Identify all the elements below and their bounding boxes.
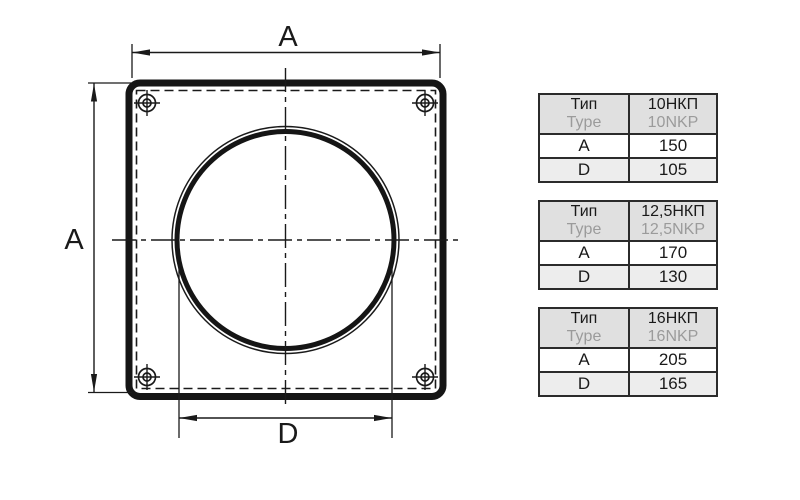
arrowhead-left-icon [179,415,197,421]
flange-drawing: A A D [0,0,530,500]
page: A A D Тип Type [0,0,800,500]
model-name-ru: 16НКП [630,310,716,328]
table-header-row: Тип Type 16НКП 16NKP [539,308,717,348]
model-name-ru: 10НКП [630,96,716,114]
table-row: D 165 [539,372,717,396]
spec-table-16nkp: Тип Type 16НКП 16NKP A 205 D 165 [538,307,718,397]
value-cell: 205 [629,348,717,372]
param-cell: A [539,348,629,372]
model-header-cell: 10НКП 10NKP [629,94,717,134]
spec-table-12-5nkp: Тип Type 12,5НКП 12,5NKP A 170 D 130 [538,200,718,290]
param-cell: D [539,372,629,396]
model-name-en: 12,5NKP [630,221,716,239]
param-cell: D [539,158,629,182]
type-label-ru: Тип [540,203,628,221]
type-label-ru: Тип [540,96,628,114]
arrowhead-up-icon [91,84,97,102]
dimension-height-a: A [64,83,132,393]
value-cell: 165 [629,372,717,396]
type-label-ru: Тип [540,310,628,328]
type-header-cell: Тип Type [539,308,629,348]
type-header-cell: Тип Type [539,201,629,241]
model-header-cell: 16НКП 16NKP [629,308,717,348]
dimension-label-width: A [278,21,298,53]
table-row: D 105 [539,158,717,182]
type-label-en: Type [540,114,628,132]
dimension-label-diameter: D [278,418,299,450]
value-cell: 130 [629,265,717,289]
arrowhead-right-icon [422,49,440,55]
param-cell: A [539,134,629,158]
table-header-row: Тип Type 10НКП 10NKP [539,94,717,134]
model-header-cell: 12,5НКП 12,5NKP [629,201,717,241]
table-row: A 205 [539,348,717,372]
type-label-en: Type [540,221,628,239]
param-cell: D [539,265,629,289]
arrowhead-left-icon [132,49,150,55]
param-cell: A [539,241,629,265]
value-cell: 170 [629,241,717,265]
model-name-en: 10NKP [630,114,716,132]
table-row: D 130 [539,265,717,289]
arrowhead-right-icon [374,415,392,421]
spec-table-10nkp: Тип Type 10НКП 10NKP A 150 D 105 [538,93,718,183]
model-name-ru: 12,5НКП [630,203,716,221]
arrowhead-down-icon [91,374,97,392]
spec-tables: Тип Type 10НКП 10NKP A 150 D 105 Тип [538,93,718,414]
type-label-en: Type [540,328,628,346]
value-cell: 150 [629,134,717,158]
model-name-en: 16NKP [630,328,716,346]
type-header-cell: Тип Type [539,94,629,134]
table-row: A 170 [539,241,717,265]
table-row: A 150 [539,134,717,158]
dimension-label-height: A [64,224,84,256]
table-header-row: Тип Type 12,5НКП 12,5NKP [539,201,717,241]
value-cell: 105 [629,158,717,182]
